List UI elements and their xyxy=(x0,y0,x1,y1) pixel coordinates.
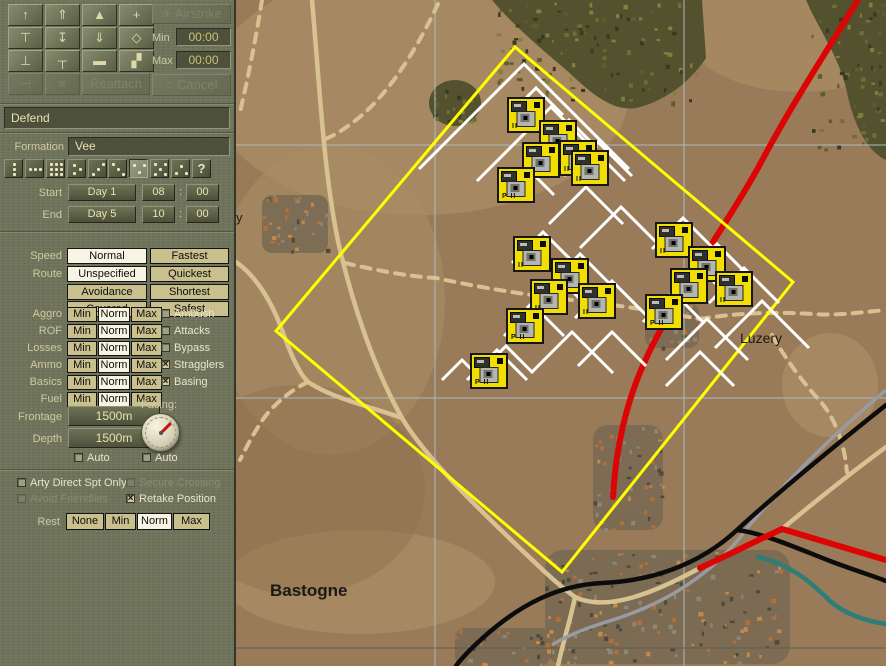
rof-max-button[interactable]: Max xyxy=(131,324,162,339)
speckle xyxy=(673,618,676,623)
speckle xyxy=(295,198,298,202)
speckle xyxy=(525,20,528,23)
speckle xyxy=(615,643,619,646)
secure-crossing-label: Secure Crossing xyxy=(139,477,220,489)
option-fastest[interactable]: Fastest xyxy=(150,248,229,264)
formation-dot xyxy=(122,173,125,176)
place-label-y: y xyxy=(236,210,243,225)
auto-facing-checkbox[interactable] xyxy=(142,453,151,462)
speckle xyxy=(647,483,650,485)
speckle xyxy=(811,35,814,38)
speckle xyxy=(312,233,314,236)
rest-none-button[interactable]: None xyxy=(66,513,104,530)
crosshair-icon: + xyxy=(133,7,141,22)
ammo-min-button[interactable]: Min xyxy=(67,358,97,373)
speckle xyxy=(552,40,554,43)
speckle xyxy=(320,222,323,226)
cancel-circle-icon: ○ xyxy=(166,77,177,92)
speckle xyxy=(599,440,601,444)
speckle xyxy=(593,572,598,575)
speckle xyxy=(693,338,697,342)
speckle xyxy=(436,117,439,121)
speckle xyxy=(595,18,598,22)
arty-direct-spt-only-checkbox[interactable] xyxy=(17,478,26,487)
speckle xyxy=(566,570,569,572)
start-day-button[interactable]: Day 1 xyxy=(68,184,136,201)
speckle xyxy=(881,4,886,7)
diamond-target-icon: ◇ xyxy=(132,30,142,45)
speckle xyxy=(578,579,583,583)
speckle xyxy=(812,129,816,133)
formation-dot xyxy=(60,168,63,171)
speckle xyxy=(574,663,576,666)
speckle xyxy=(879,32,882,35)
end-minute-field[interactable]: 00 xyxy=(186,206,219,223)
speckle xyxy=(595,614,598,617)
speckle xyxy=(741,595,743,600)
formation-line-button[interactable] xyxy=(25,159,44,178)
speckle xyxy=(639,601,642,605)
speckle xyxy=(570,87,575,89)
speckle xyxy=(610,435,614,439)
speckle xyxy=(604,637,608,641)
speckle xyxy=(630,450,632,454)
speckle xyxy=(877,107,880,111)
arty-direct-spt-only-label: Arty Direct Spt Only xyxy=(30,477,127,489)
speckle xyxy=(525,659,529,662)
start-minute-field[interactable]: 00 xyxy=(186,184,219,201)
speckle xyxy=(613,562,617,565)
speckle xyxy=(879,81,882,86)
speckle xyxy=(659,471,663,475)
attacks-checkbox[interactable] xyxy=(161,326,170,335)
speckle xyxy=(561,565,564,568)
unit-counter[interactable]: II xyxy=(715,271,753,307)
speckle xyxy=(620,573,623,575)
speckle xyxy=(594,595,596,598)
speckle xyxy=(565,33,569,37)
speckle xyxy=(879,65,881,68)
option-unspecified[interactable]: Unspecified xyxy=(67,266,147,282)
ammo-norm-button[interactable]: Norm xyxy=(98,358,130,373)
losses-norm-button[interactable]: Norm xyxy=(98,341,130,356)
speckle xyxy=(597,502,602,506)
ambush-label: Ambush xyxy=(174,308,214,320)
speckle xyxy=(860,31,864,35)
speckle xyxy=(767,608,771,611)
airstrike-button: ✈ Airstrike xyxy=(152,4,231,24)
speckle xyxy=(702,632,704,637)
speckle xyxy=(317,221,320,224)
speckle xyxy=(453,108,456,111)
end-label: End xyxy=(4,209,62,221)
speckle xyxy=(724,661,727,664)
t-handle-icon: ┬ xyxy=(58,53,67,68)
rof-label: ROF xyxy=(0,325,62,337)
speckle xyxy=(598,632,602,637)
speckle xyxy=(597,43,599,46)
order-button-eject[interactable]: ▲ xyxy=(82,4,117,26)
unit-type-icon xyxy=(540,293,559,309)
speckle xyxy=(573,32,577,36)
aggro-norm-button[interactable]: Norm xyxy=(98,307,130,322)
speckle xyxy=(650,10,652,13)
status-square-icon xyxy=(578,263,584,269)
speckle xyxy=(860,68,862,71)
secure-crossing-checkbox xyxy=(126,478,135,487)
option-avoidance[interactable]: Avoidance xyxy=(67,284,147,300)
option-normal[interactable]: Normal xyxy=(67,248,147,264)
speckle xyxy=(871,66,873,71)
speckle xyxy=(595,445,599,448)
speckle xyxy=(304,211,307,213)
formation-dot xyxy=(50,163,53,166)
speckle xyxy=(640,41,644,45)
cancel-label: Cancel xyxy=(177,77,217,92)
formation-dot xyxy=(13,168,16,171)
formation-echelon-left-button[interactable] xyxy=(108,159,127,178)
order-button-bone[interactable]: ▬ xyxy=(82,50,117,72)
speckle xyxy=(302,221,305,225)
speckle xyxy=(704,621,706,626)
split-squares-icon: ▞ xyxy=(132,53,142,68)
max-time-field[interactable]: 00:00 xyxy=(176,51,231,69)
speckle xyxy=(631,17,636,21)
status-square-icon xyxy=(598,155,604,161)
speckle xyxy=(616,14,619,18)
speckle xyxy=(646,652,650,657)
unit-counter[interactable]: P II xyxy=(506,308,544,344)
double-chevron-down-icon: ⇓ xyxy=(94,30,105,45)
unit-type-icon xyxy=(517,111,536,127)
status-square-icon xyxy=(697,273,703,279)
formation-dot xyxy=(55,168,58,171)
speckle xyxy=(274,198,279,203)
rof-norm-button[interactable]: Norm xyxy=(98,324,130,339)
speckle xyxy=(707,649,710,652)
end-hour-field[interactable]: 10 xyxy=(142,206,175,223)
speckle xyxy=(642,427,644,431)
speckle xyxy=(609,661,614,664)
unit-size-label: II xyxy=(564,166,570,174)
speckle xyxy=(865,138,869,142)
speckle xyxy=(277,243,280,245)
speckle xyxy=(780,570,784,574)
start-hour-field[interactable]: 08 xyxy=(142,184,175,201)
bypass-checkbox[interactable] xyxy=(161,343,170,352)
speckle xyxy=(870,48,874,52)
formation-dot xyxy=(159,168,162,171)
rest-max-button[interactable]: Max xyxy=(173,513,210,530)
speckle xyxy=(288,235,292,238)
speckle xyxy=(445,94,447,98)
unit-type-icon xyxy=(581,164,600,180)
rest-norm-button[interactable]: Norm xyxy=(137,513,172,530)
formation-dot xyxy=(55,173,58,176)
speckle xyxy=(690,63,692,68)
order-button-crosshair[interactable]: + xyxy=(119,4,154,26)
merge-left-icon: ⊣ xyxy=(20,76,31,91)
speckle xyxy=(545,586,548,591)
speckle xyxy=(832,5,837,8)
speckle xyxy=(775,570,780,573)
speckle xyxy=(675,654,678,657)
aggro-min-button[interactable]: Min xyxy=(67,307,97,322)
speckle xyxy=(457,96,461,100)
ambush-checkbox[interactable] xyxy=(161,309,170,318)
option-quickest[interactable]: Quickest xyxy=(150,266,229,282)
stragglers-checkbox[interactable]: × xyxy=(161,360,170,369)
unit-counter[interactable]: P II xyxy=(497,167,535,203)
formation-wedge-right-button[interactable] xyxy=(67,159,86,178)
bone-icon: ▬ xyxy=(93,53,106,68)
map-canvas xyxy=(236,0,886,666)
speckle xyxy=(858,113,863,117)
speckle xyxy=(725,592,729,594)
speckle xyxy=(602,56,606,59)
unit-counter[interactable]: II xyxy=(513,236,551,272)
speckle xyxy=(590,3,593,8)
speckle xyxy=(698,612,703,616)
speckle xyxy=(838,42,841,44)
formation-echelon-right-button[interactable] xyxy=(88,159,107,178)
speckle xyxy=(292,238,295,243)
speckle xyxy=(632,554,635,556)
speckle xyxy=(826,29,829,33)
unit-type-icon xyxy=(588,297,607,313)
basics-min-button[interactable]: Min xyxy=(67,375,97,390)
speckle xyxy=(594,501,598,505)
speckle xyxy=(517,78,522,81)
formation-field[interactable]: Vee xyxy=(68,137,230,156)
speckle xyxy=(620,14,622,19)
option-shortest[interactable]: Shortest xyxy=(150,284,229,300)
speckle xyxy=(861,85,865,89)
speckle xyxy=(777,629,782,633)
speckle xyxy=(537,58,542,62)
speckle xyxy=(445,90,448,94)
speckle xyxy=(502,635,507,638)
speckle xyxy=(733,640,735,643)
formation-column-button[interactable] xyxy=(4,159,23,178)
speckle xyxy=(669,625,673,630)
end-day-button[interactable]: Day 5 xyxy=(68,206,136,223)
speckle xyxy=(710,623,712,627)
speckle xyxy=(577,24,582,28)
formation-dot xyxy=(34,168,37,171)
ammo-max-button[interactable]: Max xyxy=(131,358,162,373)
min-time-field[interactable]: 00:00 xyxy=(176,28,231,46)
speckle xyxy=(869,17,873,20)
speckle xyxy=(509,9,512,13)
map-viewport[interactable]: IIIIIIIIIIP IIIIIIIIIIP IIIIIIIIIIP IIP … xyxy=(236,0,886,666)
basing-checkbox[interactable]: × xyxy=(161,377,170,386)
speckle xyxy=(512,652,516,655)
speckle xyxy=(504,62,509,66)
rest-min-button[interactable]: Min xyxy=(105,513,136,530)
formation-wedge-button[interactable] xyxy=(171,159,190,178)
speckle xyxy=(629,83,633,87)
order-button-split-squares[interactable]: ▞ xyxy=(119,50,154,72)
speckle xyxy=(627,18,631,22)
order-button-t-handle[interactable]: ┬ xyxy=(45,50,80,72)
unit-size-label: II xyxy=(518,262,524,270)
speed-label: Speed xyxy=(0,250,62,262)
speckle xyxy=(689,99,692,102)
speckle xyxy=(546,643,551,648)
speckle xyxy=(673,92,676,96)
speckle xyxy=(818,146,822,150)
bar-down-icon: ⊤ xyxy=(20,30,31,45)
unit-counter[interactable]: P II xyxy=(645,294,683,330)
speckle xyxy=(596,513,599,518)
order-button-ibeam[interactable]: ⊥ xyxy=(8,50,43,72)
speckle xyxy=(522,87,525,91)
formation-dot xyxy=(50,173,53,176)
speckle xyxy=(530,637,533,640)
end-colon: : xyxy=(179,208,182,220)
unit-type-icon xyxy=(725,285,744,301)
arrow-up-lines-icon: ⇑ xyxy=(57,7,68,22)
status-square-icon xyxy=(540,241,546,247)
speckle xyxy=(616,73,620,75)
status-square-icon xyxy=(605,288,611,294)
order-button-bar-down[interactable]: ⊤ xyxy=(8,27,43,49)
speckle xyxy=(749,574,754,576)
speckle xyxy=(680,582,683,586)
speckle xyxy=(855,104,857,108)
speckle xyxy=(848,25,851,30)
speckle xyxy=(746,620,750,625)
speckle xyxy=(658,440,662,442)
speckle xyxy=(554,2,557,5)
speckle xyxy=(744,627,748,632)
fuel-label: Fuel xyxy=(0,393,62,405)
speckle xyxy=(879,92,883,96)
speckle xyxy=(556,617,561,622)
rof-min-button[interactable]: Min xyxy=(67,324,97,339)
speckle xyxy=(656,582,661,584)
order-button-diamond-target[interactable]: ◇ xyxy=(119,27,154,49)
facing-dial[interactable] xyxy=(141,413,180,452)
speckle xyxy=(627,477,631,479)
order-button-arrow-up-lines[interactable]: ⇑ xyxy=(45,4,80,26)
retake-position-checkbox[interactable]: × xyxy=(126,494,135,503)
losses-min-button[interactable]: Min xyxy=(67,341,97,356)
speckle xyxy=(637,447,640,449)
speckle xyxy=(865,39,867,43)
speckle xyxy=(602,64,607,69)
speckle xyxy=(294,228,296,231)
basics-max-button[interactable]: Max xyxy=(131,375,162,390)
speckle xyxy=(574,657,577,660)
speckle xyxy=(590,572,593,575)
speckle xyxy=(624,606,629,609)
route-label: Route xyxy=(0,268,62,280)
speckle xyxy=(866,20,871,23)
speckle xyxy=(869,3,873,8)
order-button-double-chevron-down[interactable]: ⇓ xyxy=(82,27,117,49)
formation-vee-button[interactable] xyxy=(129,159,148,178)
speckle xyxy=(562,580,565,585)
speckle xyxy=(263,216,267,219)
place-label-luzery: Luzery xyxy=(740,330,782,346)
speckle xyxy=(598,494,601,496)
speckle xyxy=(326,249,331,253)
speckle xyxy=(666,65,670,69)
formation-mass-button[interactable] xyxy=(46,159,65,178)
speckle xyxy=(854,68,858,71)
cancel-button[interactable]: ○ Cancel xyxy=(152,74,231,96)
speckle xyxy=(609,639,614,643)
formation-dot xyxy=(73,164,76,167)
formation-dot xyxy=(92,173,95,176)
order-button-arrow-into-bar[interactable]: ↧ xyxy=(45,27,80,49)
speckle xyxy=(627,50,631,55)
formation-box-button[interactable] xyxy=(150,159,169,178)
speckle xyxy=(597,460,600,464)
speckle xyxy=(881,119,885,122)
order-button-arrow-up[interactable]: ↑ xyxy=(8,4,43,26)
formation-dot xyxy=(164,173,167,176)
speckle xyxy=(658,4,661,8)
fuel-min-button[interactable]: Min xyxy=(67,392,97,407)
formation-dot xyxy=(13,163,16,166)
arrow-up-icon: ↑ xyxy=(22,7,29,22)
speckle xyxy=(655,28,658,31)
speckle xyxy=(611,585,614,588)
speckle xyxy=(642,627,645,632)
speckle xyxy=(671,102,675,107)
status-square-icon xyxy=(715,251,721,257)
formation-label: Formation xyxy=(8,141,64,153)
formation-unknown-button[interactable]: ? xyxy=(192,159,211,178)
basing-label: Basing xyxy=(174,376,208,388)
speckle xyxy=(299,196,302,199)
speckle xyxy=(603,50,607,52)
speckle xyxy=(531,24,536,27)
airstrike-label: Airstrike xyxy=(175,6,222,21)
speckle xyxy=(546,91,549,95)
basics-norm-button[interactable]: Norm xyxy=(98,375,130,390)
fuel-norm-button[interactable]: Norm xyxy=(98,392,130,407)
aggro-label: Aggro xyxy=(0,308,62,320)
speckle xyxy=(600,611,602,615)
status-square-icon xyxy=(557,284,563,290)
speckle xyxy=(670,649,675,652)
speckle xyxy=(672,630,677,634)
aggro-max-button[interactable]: Max xyxy=(131,307,162,322)
speckle xyxy=(639,20,641,22)
unit-size-label: P II xyxy=(502,193,516,201)
speckle xyxy=(547,649,551,654)
speckle xyxy=(516,24,519,27)
start-colon: : xyxy=(179,186,182,198)
speckle xyxy=(627,565,631,568)
unit-counter[interactable]: P II xyxy=(470,353,508,389)
losses-max-button[interactable]: Max xyxy=(131,341,162,356)
speckle xyxy=(540,641,545,645)
auto-frontage-checkbox[interactable] xyxy=(74,453,83,462)
speckle xyxy=(648,87,651,90)
order-name-field[interactable]: Defend xyxy=(4,107,230,129)
speckle xyxy=(660,614,663,616)
unit-counter[interactable]: II xyxy=(571,150,609,186)
speckle xyxy=(455,637,458,639)
order-panel: ↑⇑▲+⊤↧⇓◇⊥┬▬▞⊣≡Reattach✈ AirstrikeMin00:0… xyxy=(0,0,236,666)
speckle xyxy=(558,10,561,13)
unit-counter[interactable]: II xyxy=(578,283,616,319)
